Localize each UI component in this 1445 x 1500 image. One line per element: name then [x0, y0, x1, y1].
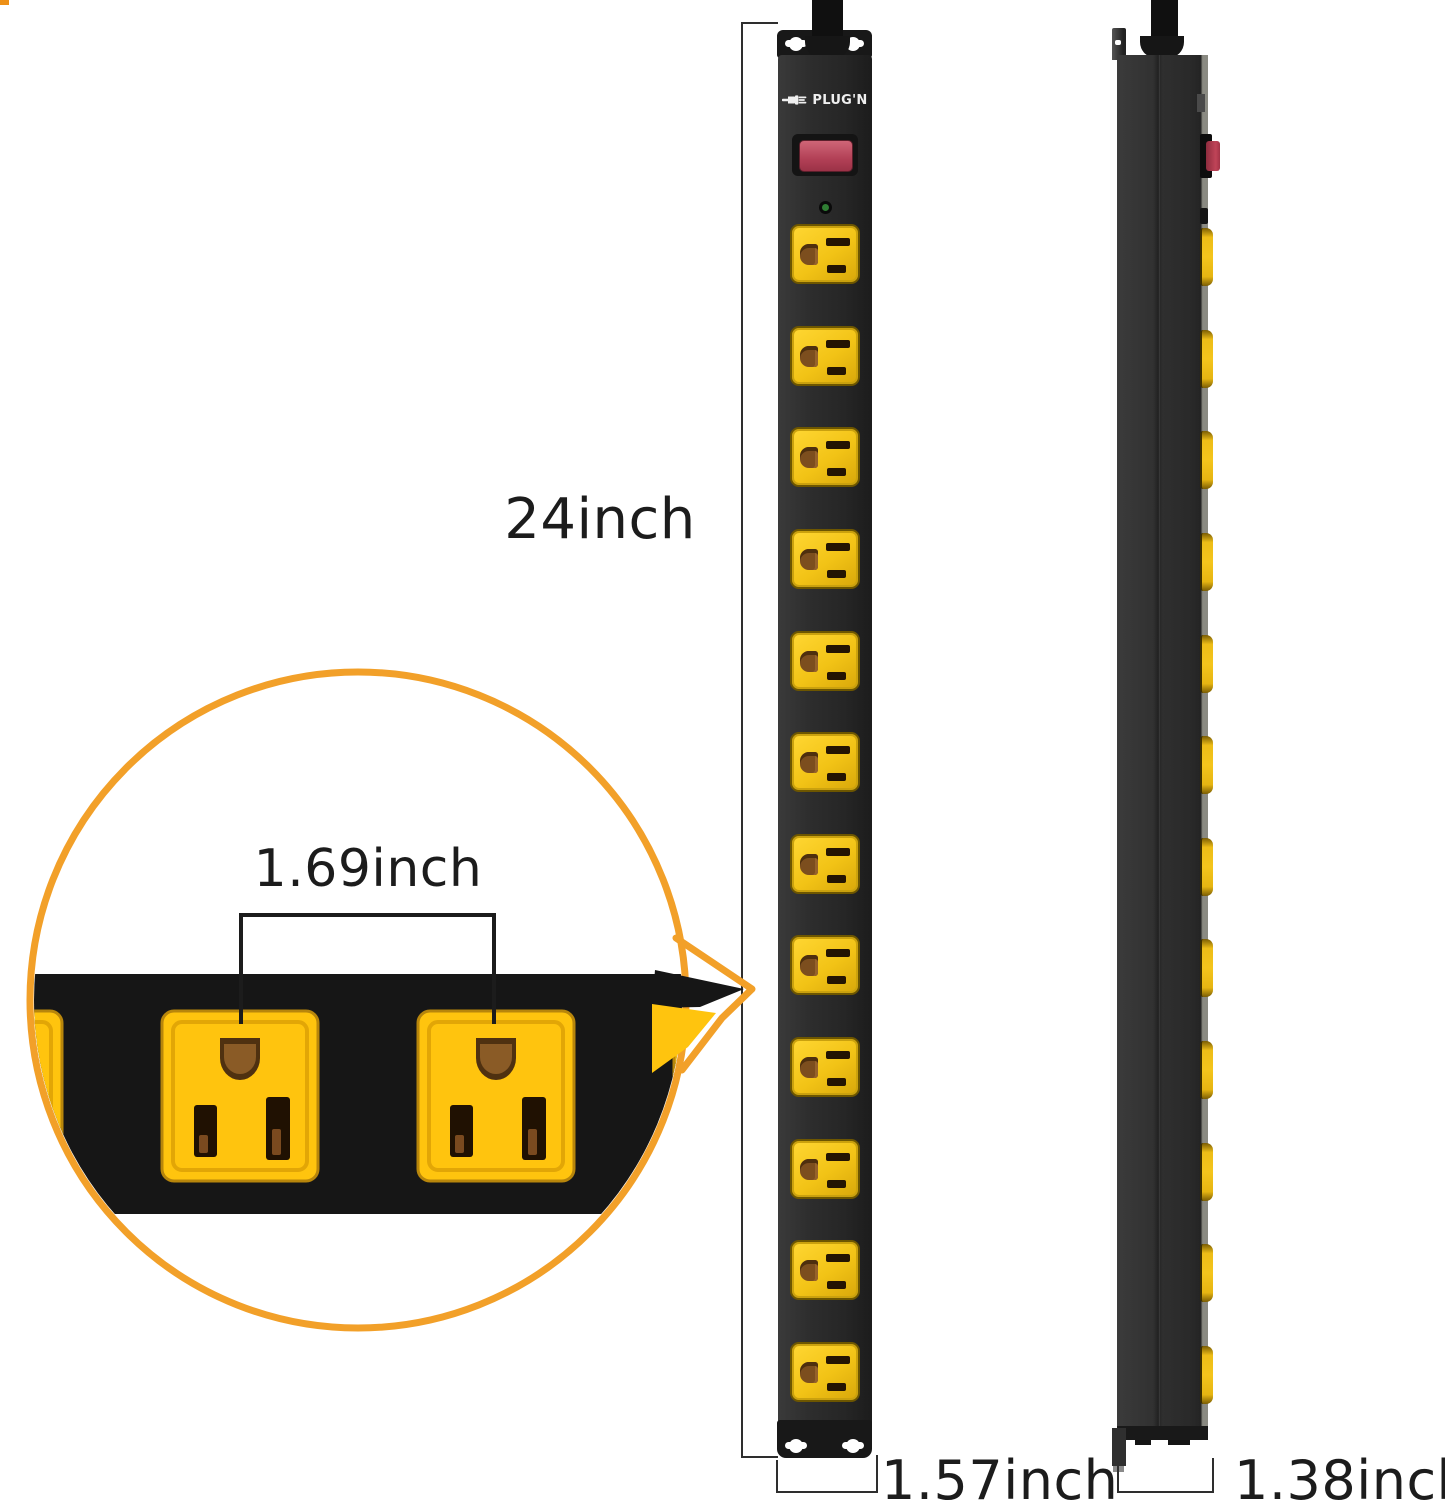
outlet-slot [827, 265, 846, 273]
outlet-profile-bump [1200, 939, 1213, 997]
outlet-profile-bump [1200, 431, 1213, 489]
product-dimension-diagram: PLUG'N 24inch [0, 0, 1445, 1500]
spacing-dimension-bracket [241, 915, 494, 1024]
outlet [790, 1037, 860, 1097]
width-dimension-line-right [876, 1455, 878, 1493]
outlet [790, 427, 860, 487]
outlet-slot [827, 367, 846, 375]
height-dimension-tick-top [741, 22, 778, 24]
outlet-slot [826, 1153, 850, 1161]
height-dimension-label: 24inch [500, 487, 700, 552]
outlet-slot [826, 645, 850, 653]
outlet-ground-hole [800, 1362, 818, 1383]
outlet-profile-bump [1200, 1143, 1213, 1201]
outlet-ground-hole [800, 1159, 818, 1180]
outlet-spacing-callout: 1.69inch [0, 620, 800, 1340]
keyhole-mount-icon [785, 1442, 807, 1449]
outlet-slot [826, 441, 850, 449]
outlet-slot [827, 1383, 846, 1391]
outlet [790, 732, 860, 792]
callout-strip-band [20, 974, 700, 1214]
outlet-slot [827, 468, 846, 476]
outlet-slot [826, 238, 850, 246]
outlet-slot [826, 949, 850, 957]
outlet-slot [827, 672, 846, 680]
side-detail-mark [1197, 94, 1205, 112]
outlet [790, 935, 860, 995]
keyhole-mount-icon [785, 40, 807, 47]
side-led-profile [1200, 208, 1208, 224]
outlet-slot [826, 1254, 850, 1262]
outlet-slot [827, 875, 846, 883]
outlet-ground-hole [800, 854, 818, 875]
depth-dimension-line-right [1212, 1458, 1214, 1493]
outlet-ground-hole [800, 1260, 818, 1281]
outlet-ground-hole [800, 244, 818, 265]
front-bottom-mount-bracket [777, 1420, 872, 1458]
outlet-ground-hole [800, 1057, 818, 1078]
depth-dimension-label: 1.38inch [1234, 1449, 1445, 1500]
outlet-ground-hole [800, 752, 818, 773]
outlet-slot [827, 570, 846, 578]
outlet-profile-bump [1200, 635, 1213, 693]
outlet-slot [826, 1051, 850, 1059]
outlet-profile-bump [1200, 1244, 1213, 1302]
callout-pointer [652, 970, 744, 1008]
side-strip-body [1117, 55, 1208, 1432]
side-foot [1135, 1440, 1151, 1445]
side-power-switch [1206, 141, 1220, 171]
outlet-profile-bump [1200, 228, 1213, 286]
outlet [790, 326, 860, 386]
depth-dimension-line-left [1117, 1462, 1119, 1493]
outlet-profile-bump [1200, 330, 1213, 388]
outlet-ground-hole [800, 549, 818, 570]
outlet-profile-bump [1200, 533, 1213, 591]
front-outlet-column [778, 55, 872, 1432]
outlet-ground-hole [800, 955, 818, 976]
outlet-profile-bump [1200, 736, 1213, 794]
corner-accent-mark [0, 0, 9, 5]
side-foot [1168, 1440, 1190, 1445]
outlet-slot [827, 1078, 846, 1086]
front-strip-body: PLUG'N [778, 55, 872, 1432]
width-dimension-label: 1.57inch [881, 1449, 1118, 1500]
width-dimension-line-left [776, 1460, 778, 1493]
side-body-edge-ridge [1158, 55, 1160, 1432]
outlet [790, 224, 860, 284]
outlet-slot [826, 746, 850, 754]
outlet-profile-bump [1200, 1041, 1213, 1099]
spacing-dimension-label: 1.69inch [254, 839, 483, 899]
outlet-slot [827, 1281, 846, 1289]
height-dimension-tick-bottom [741, 1456, 778, 1458]
outlet [790, 631, 860, 691]
outlet [790, 1342, 860, 1402]
keyhole-mount-icon [842, 1442, 864, 1449]
outlet-slot [827, 976, 846, 984]
outlet-ground-hole [800, 651, 818, 672]
callout-circle [30, 672, 686, 1328]
callout-pointer-outlet-corner [652, 1004, 716, 1073]
outlet-ground-hole [800, 447, 818, 468]
outlet-slot [826, 848, 850, 856]
outlet-slot [827, 1180, 846, 1188]
outlet-profile-bump [1200, 838, 1213, 896]
outlet-slot [827, 773, 846, 781]
outlet [790, 529, 860, 589]
outlet-slot [826, 543, 850, 551]
outlet [790, 834, 860, 894]
outlet-slot [826, 340, 850, 348]
outlet-ground-hole [800, 346, 818, 367]
depth-dimension-line-bottom [1117, 1491, 1214, 1493]
height-dimension-line [741, 23, 743, 1458]
outlet [790, 1240, 860, 1300]
outlet-profile-bump [1200, 1346, 1213, 1404]
side-bottom-plate [1117, 1426, 1208, 1440]
outlet-slot [826, 1356, 850, 1364]
width-dimension-line-bottom [776, 1491, 878, 1493]
outlet [790, 1139, 860, 1199]
